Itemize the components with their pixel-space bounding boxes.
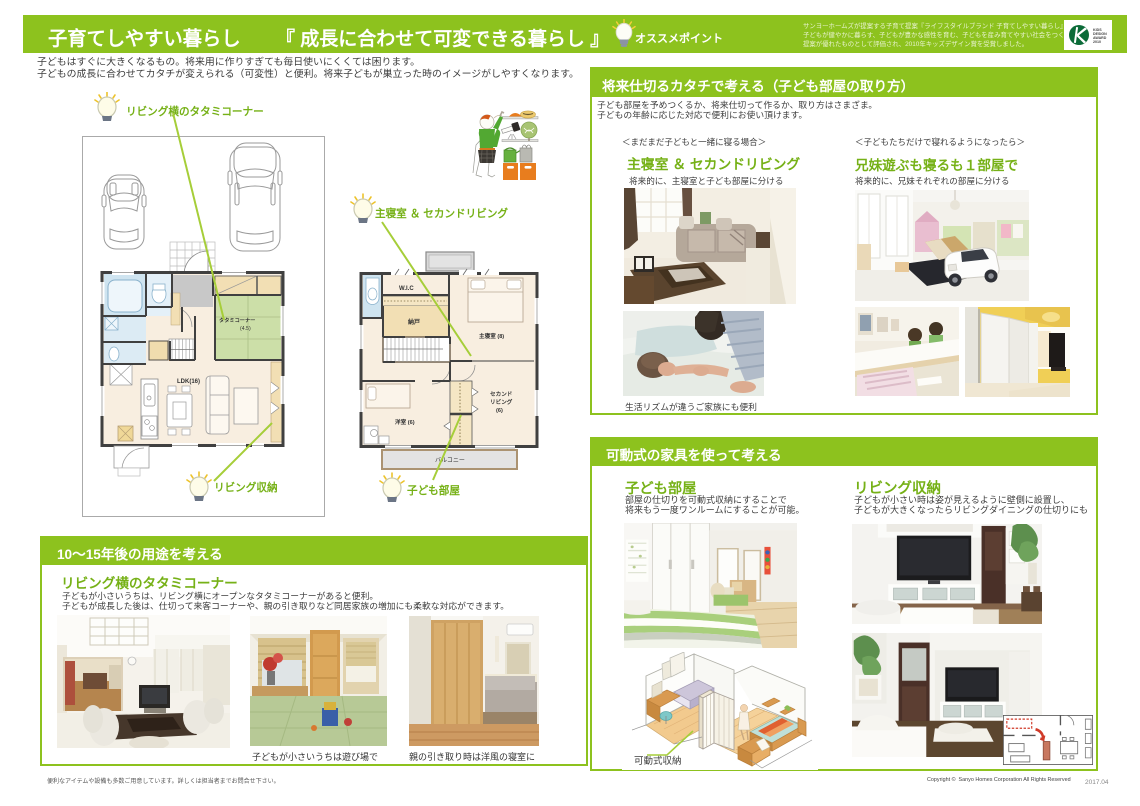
svg-text:洋室 (6): 洋室 (6) [395,418,415,426]
svg-text:主寝室 (8): 主寝室 (8) [479,332,504,340]
svg-text:リビング: リビング [490,398,513,406]
svg-text:(4.5): (4.5) [240,326,251,332]
svg-text:(6): (6) [496,408,503,414]
svg-text:LDK(16): LDK(16) [177,379,200,385]
svg-text:セカンド: セカンド [490,391,513,398]
svg-text:2010: 2010 [1093,40,1101,44]
